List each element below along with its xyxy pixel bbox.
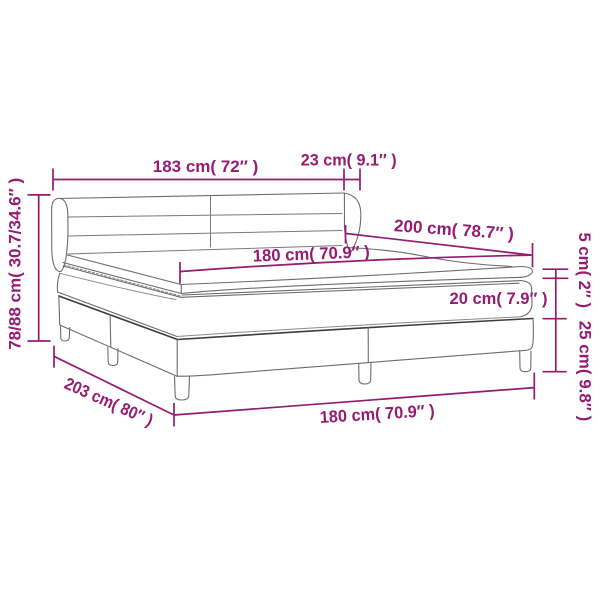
svg-text:23 cm( 9.1″ ): 23 cm( 9.1″ ): [301, 150, 397, 169]
svg-text:5 cm( 2″ ): 5 cm( 2″ ): [575, 232, 594, 308]
svg-text:20 cm( 7.9″ ): 20 cm( 7.9″ ): [450, 289, 548, 308]
svg-text:183 cm( 72″ ): 183 cm( 72″ ): [153, 157, 259, 176]
svg-text:25 cm( 9.8″ ): 25 cm( 9.8″ ): [576, 321, 595, 422]
svg-text:78/88 cm( 30.7/34.6″ ): 78/88 cm( 30.7/34.6″ ): [6, 178, 25, 350]
